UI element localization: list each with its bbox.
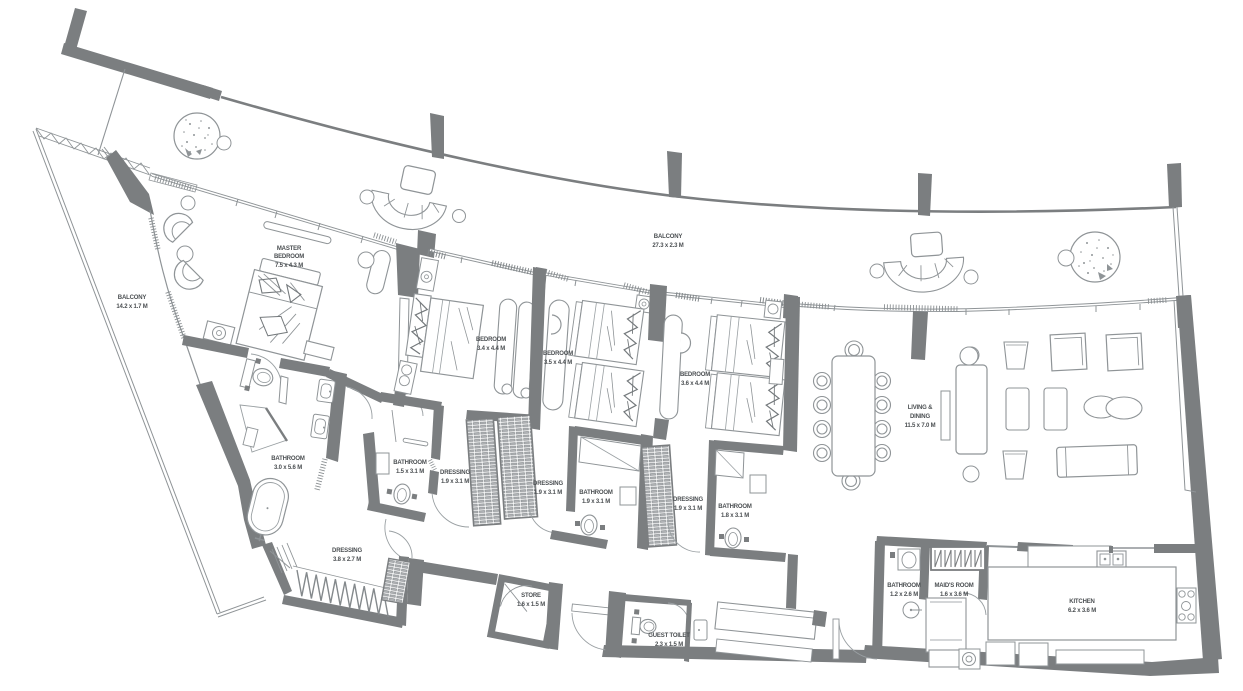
svg-text:14.2 x 1.7 M: 14.2 x 1.7 M: [116, 304, 147, 310]
svg-text:DRESSING: DRESSING: [332, 548, 362, 554]
svg-text:3.0 x 5.6 M: 3.0 x 5.6 M: [274, 465, 302, 471]
svg-text:BATHROOM: BATHROOM: [393, 460, 427, 466]
svg-text:BATHROOM: BATHROOM: [887, 583, 921, 589]
svg-text:DRESSING: DRESSING: [533, 481, 563, 487]
svg-text:BEDROOM: BEDROOM: [680, 372, 710, 378]
svg-text:1.9 x 3.1 M: 1.9 x 3.1 M: [582, 499, 610, 505]
svg-text:BALCONY: BALCONY: [118, 295, 147, 301]
svg-text:STORE: STORE: [521, 593, 541, 599]
svg-text:BALCONY: BALCONY: [654, 234, 683, 240]
svg-text:1.6 x 1.5 M: 1.6 x 1.5 M: [517, 602, 545, 608]
svg-text:BATHROOM: BATHROOM: [271, 456, 305, 462]
svg-text:1.9 x 3.1 M: 1.9 x 3.1 M: [534, 490, 562, 496]
svg-text:3.5 x 4.4 M: 3.5 x 4.4 M: [544, 360, 572, 366]
svg-text:DRESSING: DRESSING: [440, 470, 470, 476]
svg-text:DINING: DINING: [910, 414, 930, 420]
svg-text:LIVING &: LIVING &: [908, 405, 933, 411]
svg-text:3.8 x 2.7 M: 3.8 x 2.7 M: [333, 557, 361, 563]
svg-text:2.3 x 1.5 M: 2.3 x 1.5 M: [655, 642, 683, 648]
svg-text:1.6 x 3.6 M: 1.6 x 3.6 M: [940, 592, 968, 598]
svg-text:1.9 x 3.1 M: 1.9 x 3.1 M: [441, 479, 469, 485]
svg-text:3.6 x 4.4 M: 3.6 x 4.4 M: [681, 381, 709, 387]
svg-text:1.9 x 3.1 M: 1.9 x 3.1 M: [674, 506, 702, 512]
svg-text:6.2 x 3.6 M: 6.2 x 3.6 M: [1068, 608, 1096, 614]
svg-text:GUEST TOILET: GUEST TOILET: [648, 633, 690, 639]
svg-text:BEDROOM: BEDROOM: [274, 254, 304, 260]
svg-text:BEDROOM: BEDROOM: [476, 337, 506, 343]
svg-text:BEDROOM: BEDROOM: [543, 351, 573, 357]
svg-text:1.8 x 3.1 M: 1.8 x 3.1 M: [721, 513, 749, 519]
svg-text:KITCHEN: KITCHEN: [1069, 599, 1094, 605]
svg-text:BATHROOM: BATHROOM: [718, 504, 752, 510]
svg-text:1.2 x 2.6 M: 1.2 x 2.6 M: [890, 592, 918, 598]
svg-text:MASTER: MASTER: [277, 246, 302, 252]
svg-text:27.3 x 2.3 M: 27.3 x 2.3 M: [652, 243, 683, 249]
svg-text:1.5 x 3.1 M: 1.5 x 3.1 M: [396, 469, 424, 475]
svg-text:DRESSING: DRESSING: [673, 497, 703, 503]
svg-text:MAID'S ROOM: MAID'S ROOM: [934, 583, 973, 589]
svg-text:BATHROOM: BATHROOM: [579, 490, 613, 496]
svg-text:11.5 x 7.0 M: 11.5 x 7.0 M: [905, 423, 936, 429]
svg-text:7.5 x 4.3 M: 7.5 x 4.3 M: [275, 263, 303, 269]
svg-text:3.4 x 4.4 M: 3.4 x 4.4 M: [477, 346, 505, 352]
